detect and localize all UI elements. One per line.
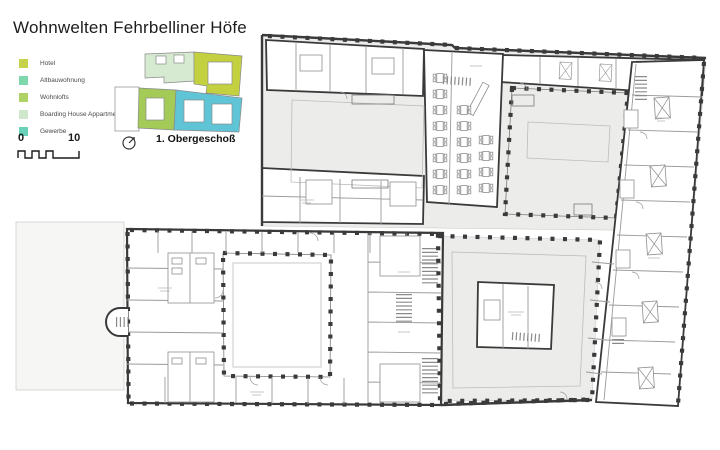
legend-swatch (19, 93, 28, 102)
page-title: Wohnwelten Fehrbelliner Höfe (13, 18, 247, 38)
scale-end-label: 10 (68, 132, 80, 144)
keyplan-boarding-house (145, 52, 195, 83)
north-arrow-icon (120, 134, 138, 152)
legend-item: Altbauwohnung (19, 72, 125, 89)
legend-item: Boarding House Appartments (19, 106, 125, 123)
legend: Hotel Altbauwohnung Wohnlofts Boarding H… (19, 55, 125, 140)
lower-left-building (106, 229, 443, 405)
scale-bar (17, 146, 107, 160)
legend-label: Altbauwohnung (40, 77, 85, 84)
legend-label: Hotel (40, 60, 55, 67)
scale-row: 0 10 1. Obergeschoß (16, 130, 246, 170)
courtyard-center-building (477, 282, 554, 349)
bay-window (106, 308, 128, 336)
legend-item: Hotel (19, 55, 125, 72)
page: Wohnwelten Fehrbelliner Höfe Hotel Altba… (0, 0, 720, 450)
legend-label: Wohnlofts (40, 94, 69, 101)
keyplan-plot (115, 87, 139, 131)
legend-item: Wohnlofts (19, 89, 125, 106)
scale-start-label: 0 (18, 132, 24, 144)
floor-label: 1. Obergeschoß (156, 133, 235, 145)
neighbor-plot (16, 222, 124, 390)
legend-swatch (19, 59, 28, 68)
legend-swatch (19, 110, 28, 119)
legend-swatch (19, 76, 28, 85)
restaurant (424, 50, 503, 207)
info-panel: Wohnwelten Fehrbelliner Höfe Hotel Altba… (0, 0, 260, 175)
keyplan-minimap (112, 50, 248, 136)
